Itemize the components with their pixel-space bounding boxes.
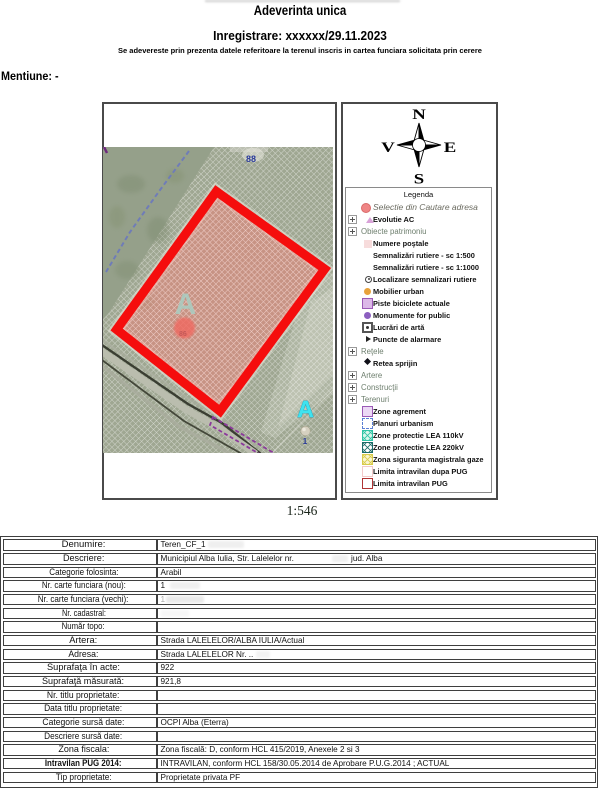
svg-text:N: N [412,106,426,123]
svg-text:V: V [381,139,395,156]
svg-text:86: 86 [179,331,187,338]
svg-text:E: E [444,139,457,156]
svg-text:A: A [175,288,197,321]
svg-text:S: S [414,170,424,185]
svg-text:1: 1 [303,437,308,446]
svg-text:A: A [297,396,314,422]
svg-text:88: 88 [246,154,256,164]
